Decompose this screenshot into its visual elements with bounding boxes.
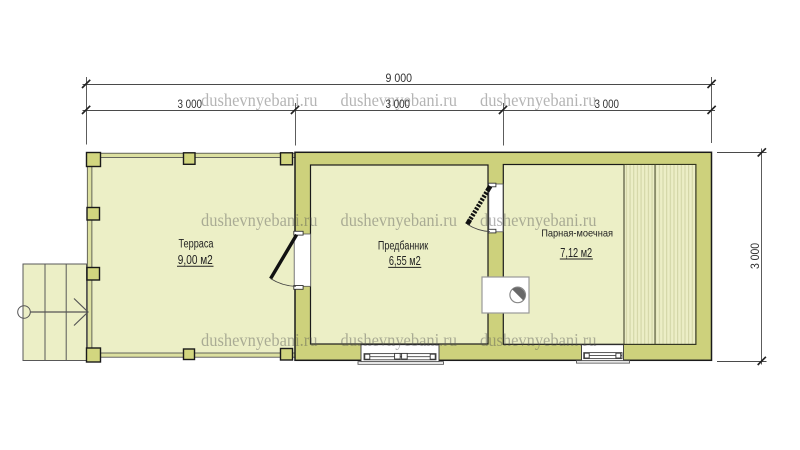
svg-text:dushevnyebani.ru: dushevnyebani.ru	[480, 210, 597, 230]
svg-text:3 000: 3 000	[748, 243, 762, 269]
svg-text:dushevnyebani.ru: dushevnyebani.ru	[201, 330, 318, 350]
svg-text:Предбанник: Предбанник	[378, 241, 429, 253]
svg-text:dushevnyebani.ru: dushevnyebani.ru	[341, 330, 458, 350]
svg-text:9,00 м2: 9,00 м2	[178, 253, 213, 267]
svg-text:7,12 м2: 7,12 м2	[560, 246, 592, 260]
svg-text:dushevnyebani.ru: dushevnyebani.ru	[480, 330, 597, 350]
svg-text:dushevnyebani.ru: dushevnyebani.ru	[480, 90, 597, 110]
svg-text:3 000: 3 000	[595, 97, 620, 111]
svg-text:3 000: 3 000	[178, 97, 203, 111]
svg-text:dushevnyebani.ru: dushevnyebani.ru	[201, 210, 318, 230]
svg-text:dushevnyebani.ru: dushevnyebani.ru	[341, 210, 458, 230]
svg-text:6,55 м2: 6,55 м2	[389, 254, 421, 268]
svg-text:dushevnyebani.ru: dushevnyebani.ru	[341, 90, 458, 110]
svg-text:dushevnyebani.ru: dushevnyebani.ru	[201, 90, 318, 110]
svg-text:9 000: 9 000	[386, 71, 413, 85]
svg-text:Терраса: Терраса	[179, 238, 214, 250]
